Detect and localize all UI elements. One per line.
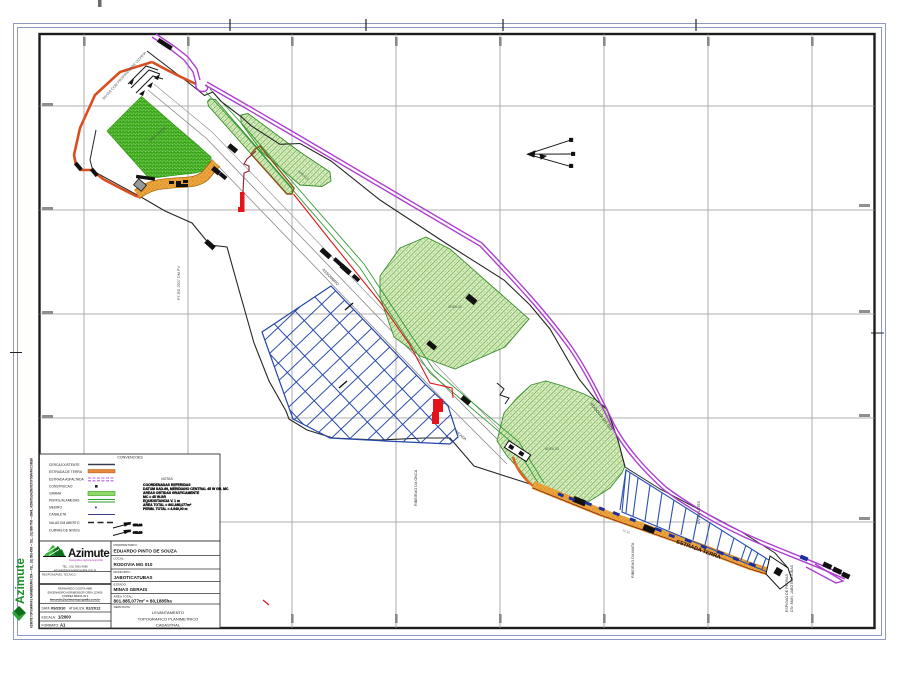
svg-text:FERNANDO COSTA ABE: FERNANDO COSTA ABE <box>58 587 92 591</box>
svg-text:801.885,077m² = 80,188: 801.885,077m² = 80,1885ha <box>114 599 173 604</box>
svg-text:PERFIL/ALAMEDAS: PERFIL/ALAMEDAS <box>49 499 80 503</box>
svg-text:ESTADO:: ESTADO: <box>114 583 127 587</box>
svg-text:RESPONSAVEL TECNICO:: RESPONSAVEL TECNICO: <box>42 573 77 577</box>
svg-text:AREA 02: AREA 02 <box>448 305 462 309</box>
svg-text:Azimute: Azimute <box>13 558 27 604</box>
svg-text:LEVANTAMENTO: LEVANTAMENTO <box>152 610 184 615</box>
svg-text:MUNICIPIO:: MUNICIPIO: <box>114 570 131 574</box>
svg-text:ESTRADA DE TERRA: ESTRADA DE TERRA <box>49 470 83 474</box>
svg-text:GRAMA: GRAMA <box>49 492 62 496</box>
svg-text:ESPIGAO DE PEDRAS: ESPIGAO DE PEDRAS <box>785 573 789 612</box>
svg-text:ESCALA:: ESCALA: <box>42 616 56 620</box>
svg-text:CERCA EXISTENTE: CERCA EXISTENTE <box>49 463 80 467</box>
svg-text:DATA:: DATA: <box>42 607 51 611</box>
svg-text:LOCAL:: LOCAL: <box>114 557 125 561</box>
svg-text:CANALETA: CANALETA <box>49 513 67 517</box>
svg-text:topografia e agrimensura ltda: topografia e agrimensura ltda <box>69 558 103 562</box>
svg-text:ESTRADA ASFALTADA: ESTRADA ASFALTADA <box>49 478 84 482</box>
svg-text:1/2000: 1/2000 <box>58 615 71 620</box>
svg-text:AREA 03: AREA 03 <box>545 447 559 451</box>
svg-text:TOPOGRAFICO PLANIMETRICO: TOPOGRAFICO PLANIMETRICO <box>138 617 199 622</box>
svg-text:FORMATO:: FORMATO: <box>42 624 60 628</box>
svg-text:PERIM. TOTAL = 4.640,00 m: PERIM. TOTAL = 4.640,00 m <box>143 507 188 511</box>
svg-text:RODOVIA MG 010: RODOVIA MG 010 <box>114 562 153 567</box>
svg-text:650.00: 650.00 <box>133 523 143 527</box>
svg-text:EDUARDO PINTO DE SOUZA: EDUARDO PINTO DE SOUZA <box>114 549 178 554</box>
svg-text:AZIMUTE TOPOGRAFIA E AGRIMENSU: AZIMUTE TOPOGRAFIA E AGRIMENSURA LTDA — … <box>30 458 34 628</box>
svg-text:PROPRIETARIO:: PROPRIETARIO: <box>114 543 138 547</box>
svg-text:JABOTICATUBAS: JABOTICATUBAS <box>114 575 153 580</box>
svg-text:RIBEIRAO DA MATA: RIBEIRAO DA MATA <box>631 542 635 578</box>
svg-text:A1: A1 <box>60 623 66 628</box>
svg-text:ATUALIZA:: ATUALIZA: <box>69 607 85 611</box>
svg-text:TEL.: (31) 3681-4589: TEL.: (31) 3681-4589 <box>62 565 88 569</box>
svg-text:CONVENCOES: CONVENCOES <box>117 456 143 460</box>
svg-text:SERVICOS:: SERVICOS: <box>114 605 131 609</box>
svg-text:CURVAS DE NIVEIS: CURVAS DE NIVEIS <box>49 529 80 533</box>
svg-text:MEEIRO: MEEIRO <box>49 506 62 510</box>
svg-text:CONSTRUCAO: CONSTRUCAO <box>49 485 73 489</box>
svg-text:RIBEIRAO DA ONCA: RIBEIRAO DA ONCA <box>414 469 418 506</box>
svg-text:DIVISA LOTES: DIVISA LOTES <box>697 500 701 524</box>
svg-text:MINAS GERAIS: MINAS GERAIS <box>114 587 148 592</box>
svg-text:PT-RD 2507 DM PV: PT-RD 2507 DM PV <box>177 266 181 300</box>
svg-text:09/2010: 09/2010 <box>51 606 66 611</box>
svg-text:VALAS EM ABERTO: VALAS EM ABERTO <box>49 521 80 525</box>
svg-text:DIV. MUN. JABOTICATUBAS: DIV. MUN. JABOTICATUBAS <box>790 564 794 612</box>
svg-text:fernando@azimutetopografia.com: fernando@azimutetopografia.com.br <box>50 598 101 602</box>
svg-text:ENGENHEIRO AGRIMENSOR CREA 123: ENGENHEIRO AGRIMENSOR CREA 123456 <box>48 591 103 595</box>
svg-text:CADASTRAL: CADASTRAL <box>156 623 181 628</box>
svg-text:649.00: 649.00 <box>133 531 143 535</box>
svg-text:02/2012: 02/2012 <box>86 606 101 611</box>
svg-text:NOTAS: NOTAS <box>161 477 173 481</box>
